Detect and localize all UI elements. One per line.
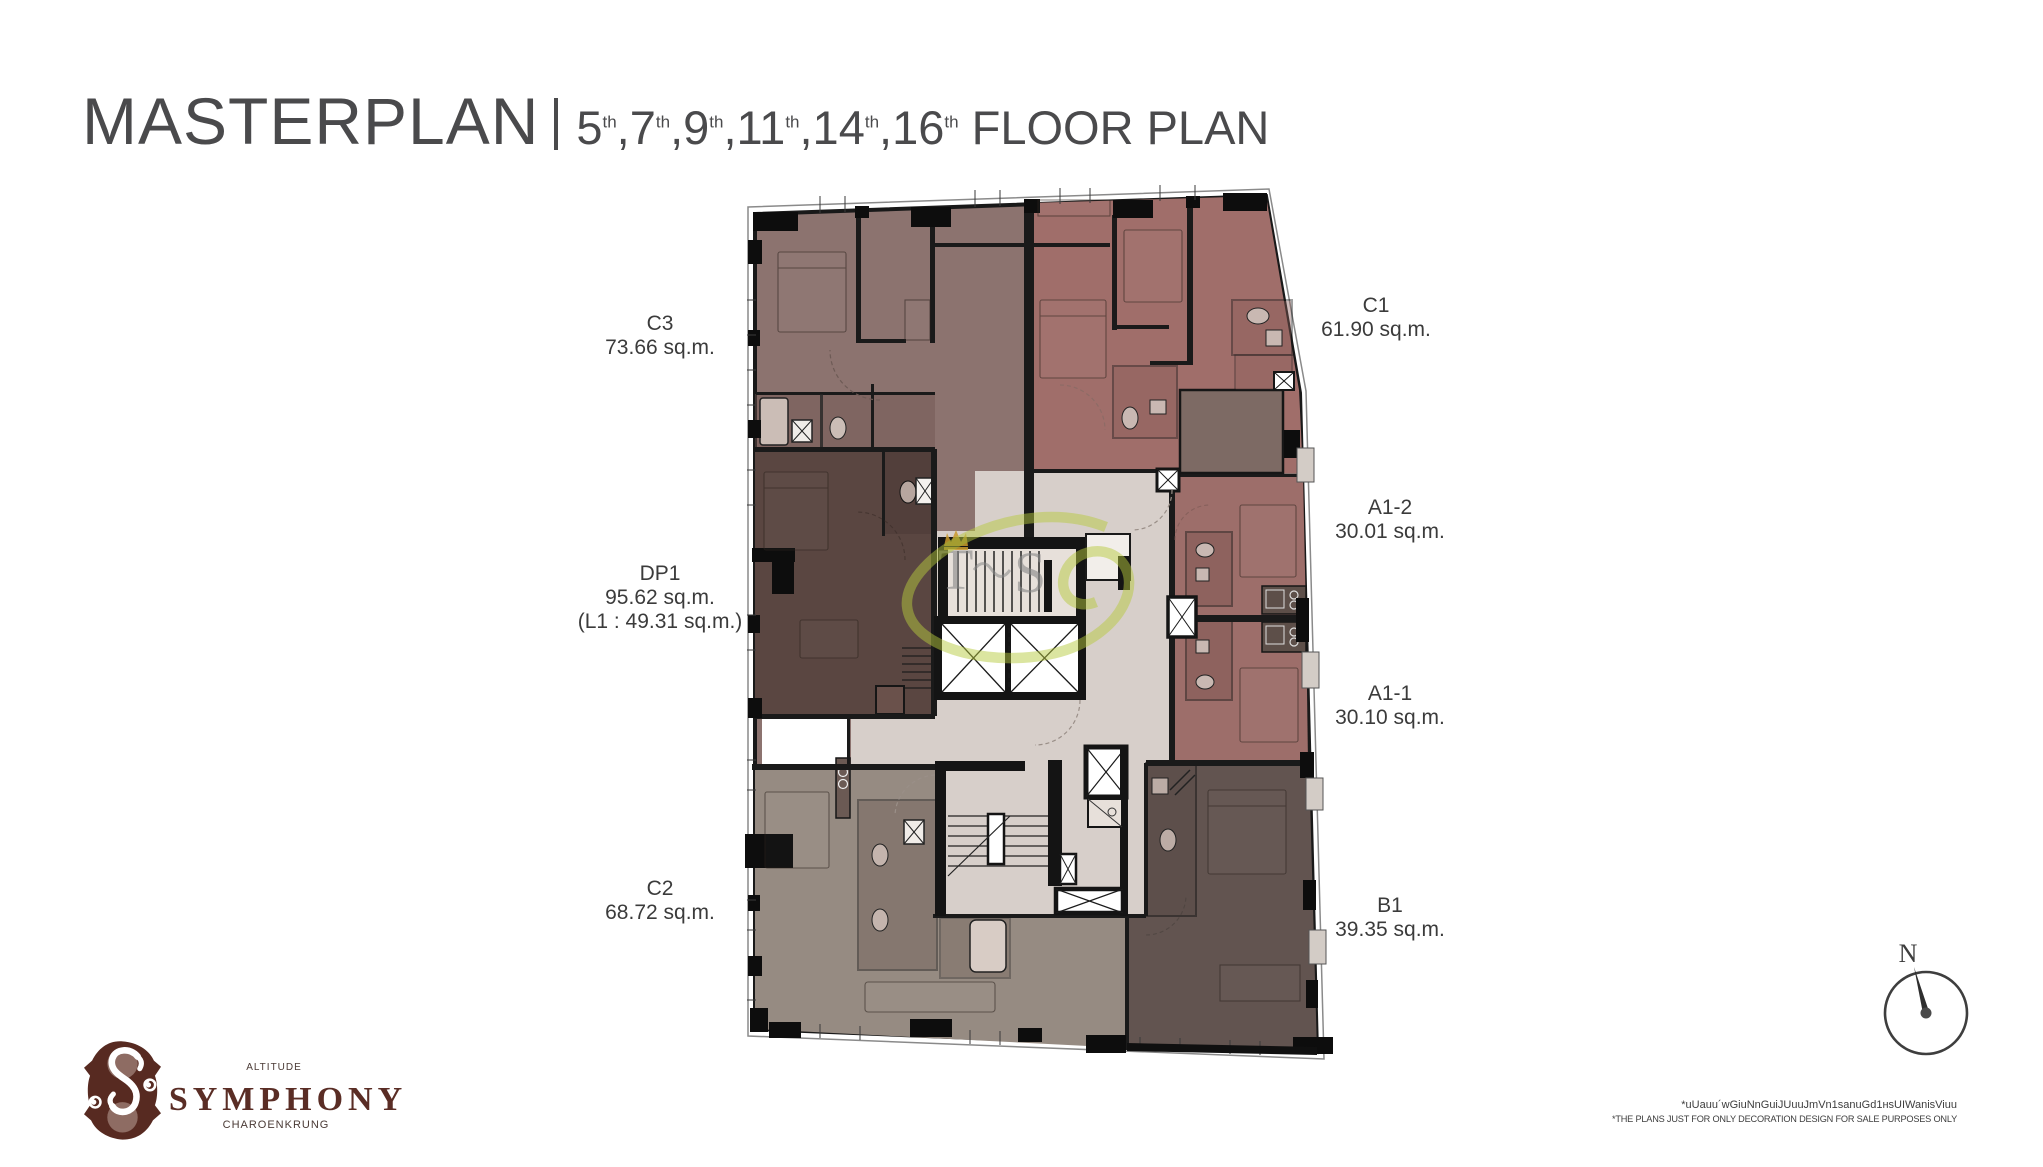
svg-text:N: N xyxy=(1899,939,1918,968)
svg-text:S: S xyxy=(1014,540,1046,605)
